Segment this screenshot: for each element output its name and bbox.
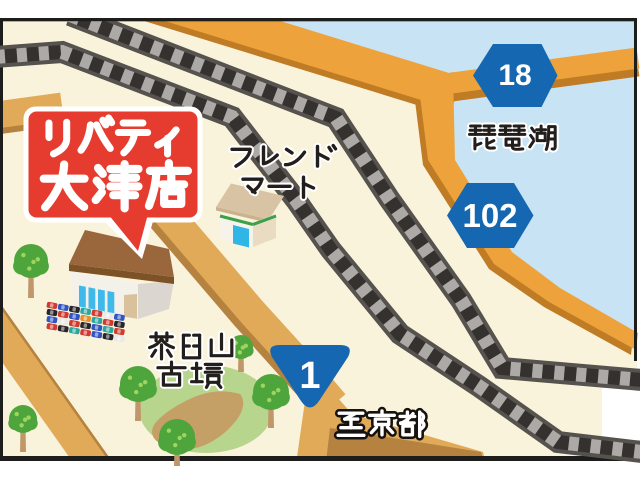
svg-text:18: 18 [498,59,531,92]
svg-text:102: 102 [462,197,517,234]
svg-text:1: 1 [299,355,320,397]
